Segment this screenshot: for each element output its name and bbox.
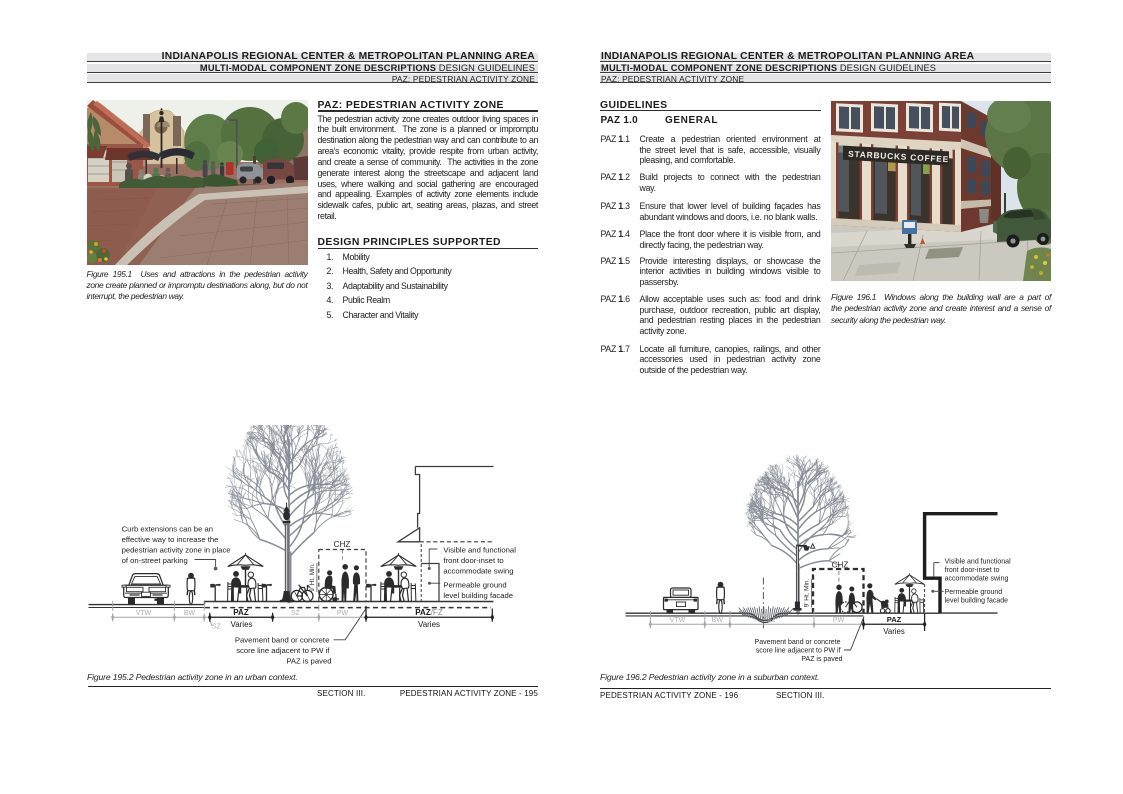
svg-text:Pavement band or concrete scor: Pavement band or concrete score line adj… [235,636,332,666]
svg-text:Varies: Varies [418,620,440,629]
svg-text:PAZ/FZ: PAZ/FZ [415,608,443,617]
svg-text:CHZ: CHZ [832,560,849,569]
svg-text:9’ Ht. Min.: 9’ Ht. Min. [804,579,811,608]
svg-text:PAZ: PAZ [233,608,249,617]
svg-text:9’ Ht. Min.: 9’ Ht. Min. [309,563,316,592]
svg-text:PAZ: PAZ [887,615,902,624]
svg-text:Varies: Varies [883,627,905,636]
svg-text:Visible and functional front d: Visible and functional front door-inset … [945,559,1013,605]
svg-text:CHZ: CHZ [334,540,351,549]
svg-text:Pavement band or concrete scor: Pavement band or concrete score line adj… [755,639,843,663]
svg-text:Visible and functional front d: Visible and functional front door-inset … [443,546,518,601]
svg-text:Curb extensions can be an effe: Curb extensions can be an effective way … [122,525,233,566]
svg-text:Varies: Varies [230,620,252,629]
